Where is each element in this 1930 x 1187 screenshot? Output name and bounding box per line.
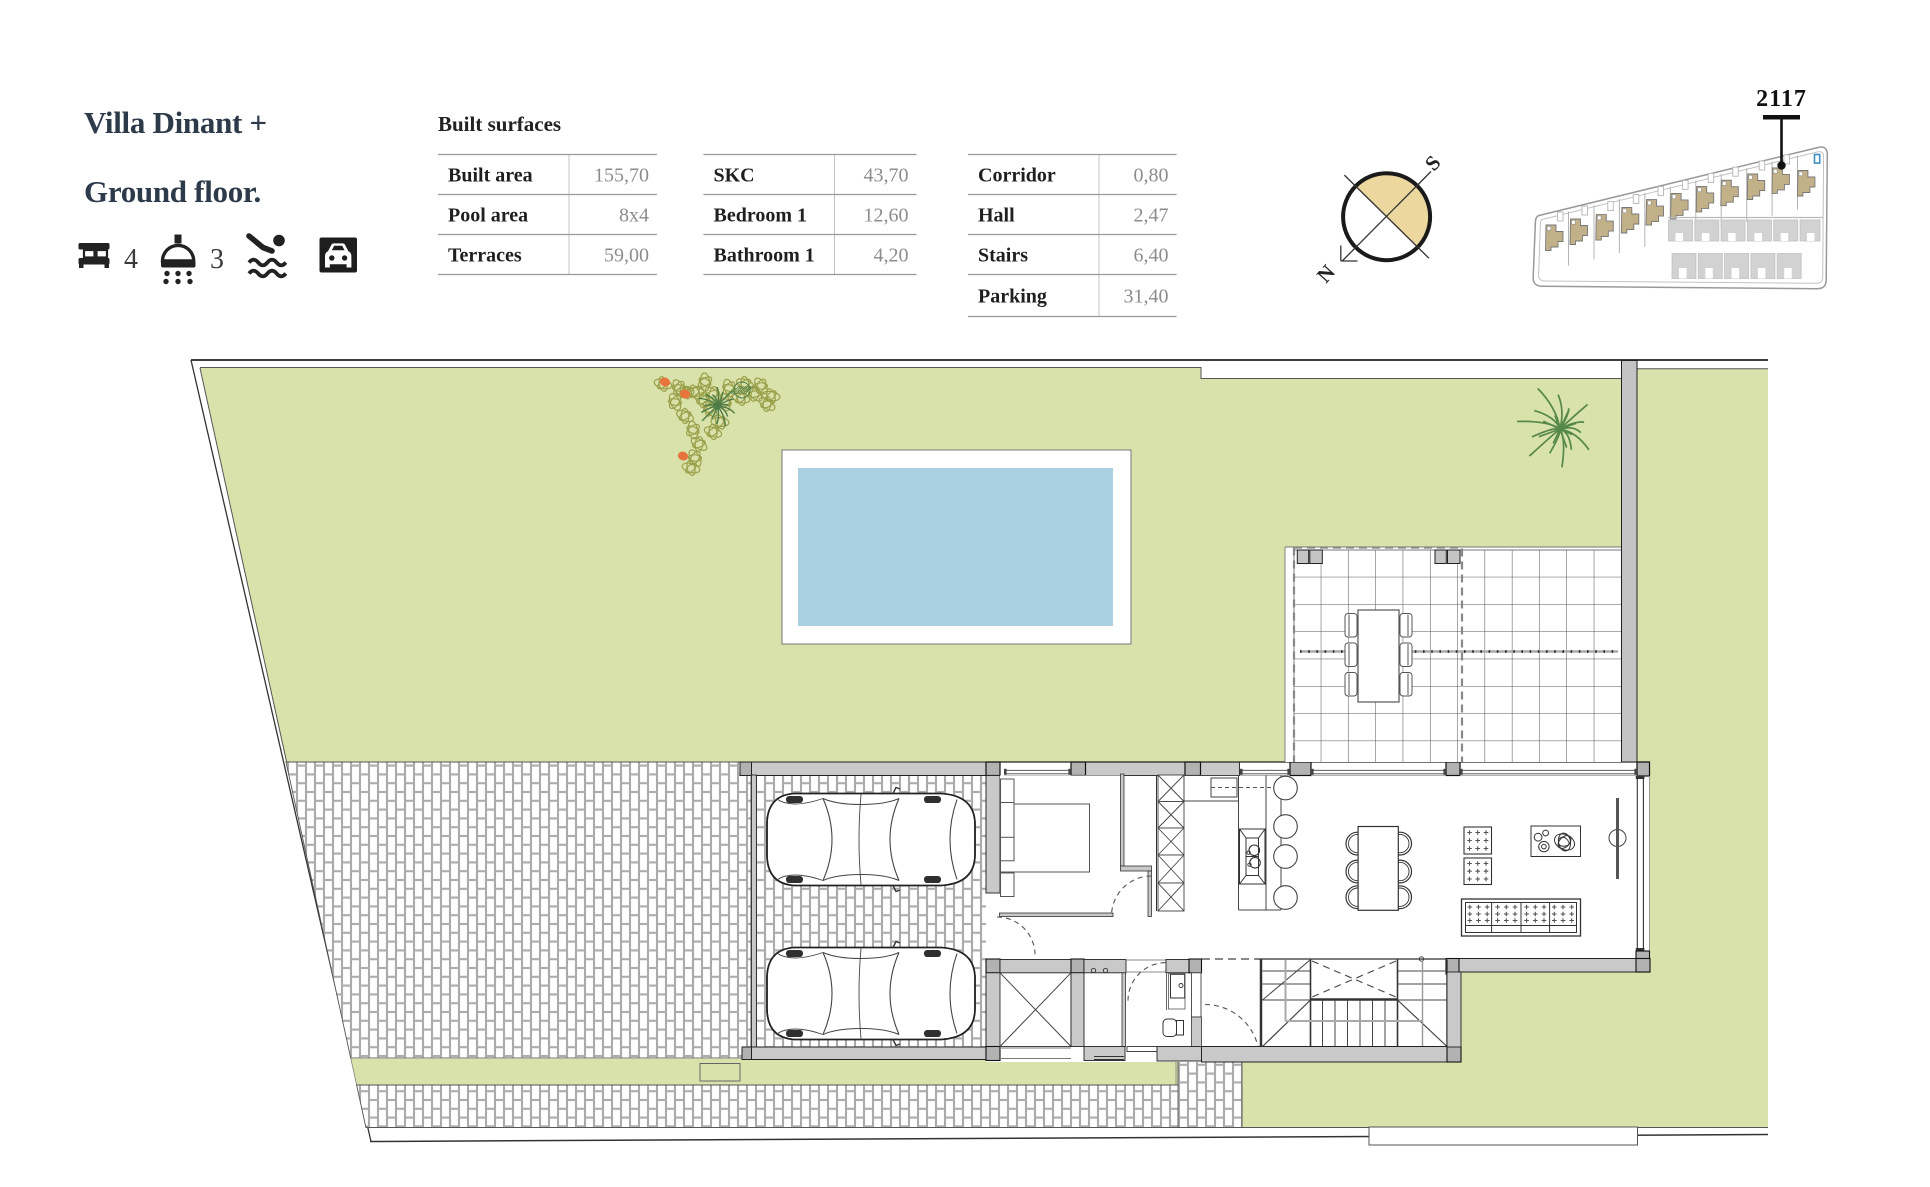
svg-text:3: 3 <box>210 244 224 275</box>
svg-text:8x4: 8x4 <box>619 205 649 227</box>
svg-text:4: 4 <box>124 244 138 275</box>
svg-text:31,40: 31,40 <box>1124 286 1169 308</box>
svg-text:Villa Dinant +: Villa Dinant + <box>84 105 267 140</box>
svg-text:2,47: 2,47 <box>1134 205 1169 227</box>
svg-text:Bedroom 1: Bedroom 1 <box>714 205 808 227</box>
svg-text:43,70: 43,70 <box>864 165 909 187</box>
svg-text:Stairs: Stairs <box>978 245 1028 267</box>
svg-text:Pool area: Pool area <box>448 205 528 227</box>
svg-text:Bathroom 1: Bathroom 1 <box>714 245 815 267</box>
svg-text:59,00: 59,00 <box>604 245 649 267</box>
svg-text:155,70: 155,70 <box>594 165 649 187</box>
svg-text:SKC: SKC <box>714 165 755 187</box>
svg-text:6,40: 6,40 <box>1134 245 1169 267</box>
svg-text:4,20: 4,20 <box>874 245 909 267</box>
svg-text:Ground floor.: Ground floor. <box>84 174 261 209</box>
svg-text:Built surfaces: Built surfaces <box>438 112 561 136</box>
svg-text:0,80: 0,80 <box>1134 165 1169 187</box>
svg-text:12,60: 12,60 <box>864 205 909 227</box>
svg-text:2117: 2117 <box>1756 86 1807 112</box>
svg-text:Hall: Hall <box>978 205 1015 227</box>
svg-text:Corridor: Corridor <box>978 165 1056 187</box>
svg-text:Built area: Built area <box>448 165 533 187</box>
svg-text:Parking: Parking <box>978 286 1047 308</box>
svg-text:Terraces: Terraces <box>448 245 522 267</box>
